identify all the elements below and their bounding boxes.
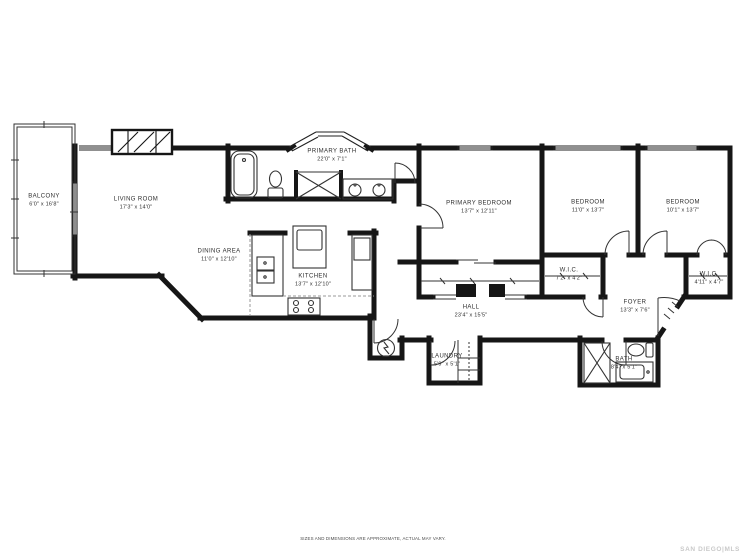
room-label-balcony: BALCONY 6'0" x 16'8" bbox=[28, 192, 59, 209]
room-label-bath: BATH 8'4" x 5'1" bbox=[611, 355, 637, 372]
room-label-dining-area: DINING AREA 11'0" x 12'10" bbox=[197, 247, 240, 264]
toilet-icon-primary bbox=[268, 171, 283, 198]
room-label-bedroom-3: BEDROOM 10'1" x 13'7" bbox=[666, 198, 700, 215]
water-heater-icon bbox=[378, 340, 395, 357]
fridge-icon bbox=[352, 235, 372, 290]
entry-threshold bbox=[664, 302, 678, 319]
disclaimer-text: SIZES AND DIMENSIONS ARE APPROXIMATE, AC… bbox=[300, 536, 446, 541]
stove-icon bbox=[288, 298, 320, 315]
room-label-wic-2: W.I.C. 4'11" x 4'7" bbox=[694, 270, 723, 287]
shower-icon-bath bbox=[584, 343, 610, 383]
floorplan-drawing bbox=[0, 0, 747, 560]
room-label-primary-bath: PRIMARY BATH 22'0" x 7'1" bbox=[307, 147, 356, 164]
room-label-wic-1: W.I.C. 7'2" x 4'2" bbox=[556, 266, 582, 283]
floorplan-page: BALCONY 6'0" x 16'8" LIVING ROOM 17'3" x… bbox=[0, 0, 747, 560]
kitchen-counter-sink-icon bbox=[252, 235, 283, 296]
double-vanity-icon bbox=[343, 179, 393, 199]
room-label-living-room: LIVING ROOM 17'3" x 14'0" bbox=[114, 195, 158, 212]
kitchen-island-icon bbox=[293, 226, 326, 268]
room-label-bedroom-2: BEDROOM 11'0" x 13'7" bbox=[571, 198, 605, 215]
room-label-kitchen: KITCHEN 13'7" x 12'10" bbox=[295, 272, 331, 289]
room-label-laundry: LAUNDRY 5'9" x 5'1" bbox=[431, 352, 462, 369]
closet-wall-stubs bbox=[456, 284, 505, 297]
room-label-hall: HALL 23'4" x 15'5" bbox=[455, 303, 488, 320]
bathtub-icon bbox=[231, 151, 257, 198]
shower-icon-primary bbox=[296, 172, 341, 199]
room-label-primary-bedroom: PRIMARY BEDROOM 13'7" x 12'11" bbox=[446, 199, 512, 216]
sandiego-mls-logo: SAN DIEGO|MLS bbox=[680, 546, 740, 553]
room-label-foyer: FOYER 13'3" x 7'6" bbox=[620, 298, 650, 315]
fireplace-icon bbox=[112, 130, 172, 154]
